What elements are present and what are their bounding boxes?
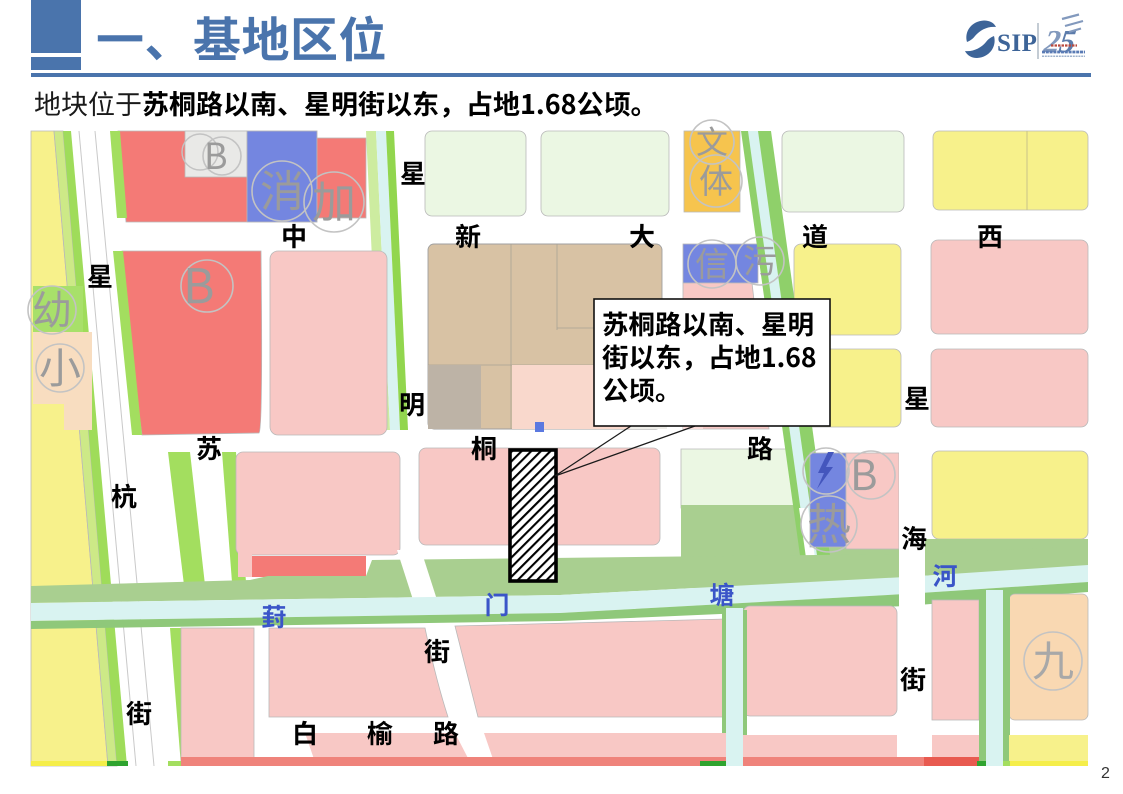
svg-text:2: 2	[1101, 765, 1110, 782]
svg-text:SIP: SIP	[997, 30, 1037, 57]
